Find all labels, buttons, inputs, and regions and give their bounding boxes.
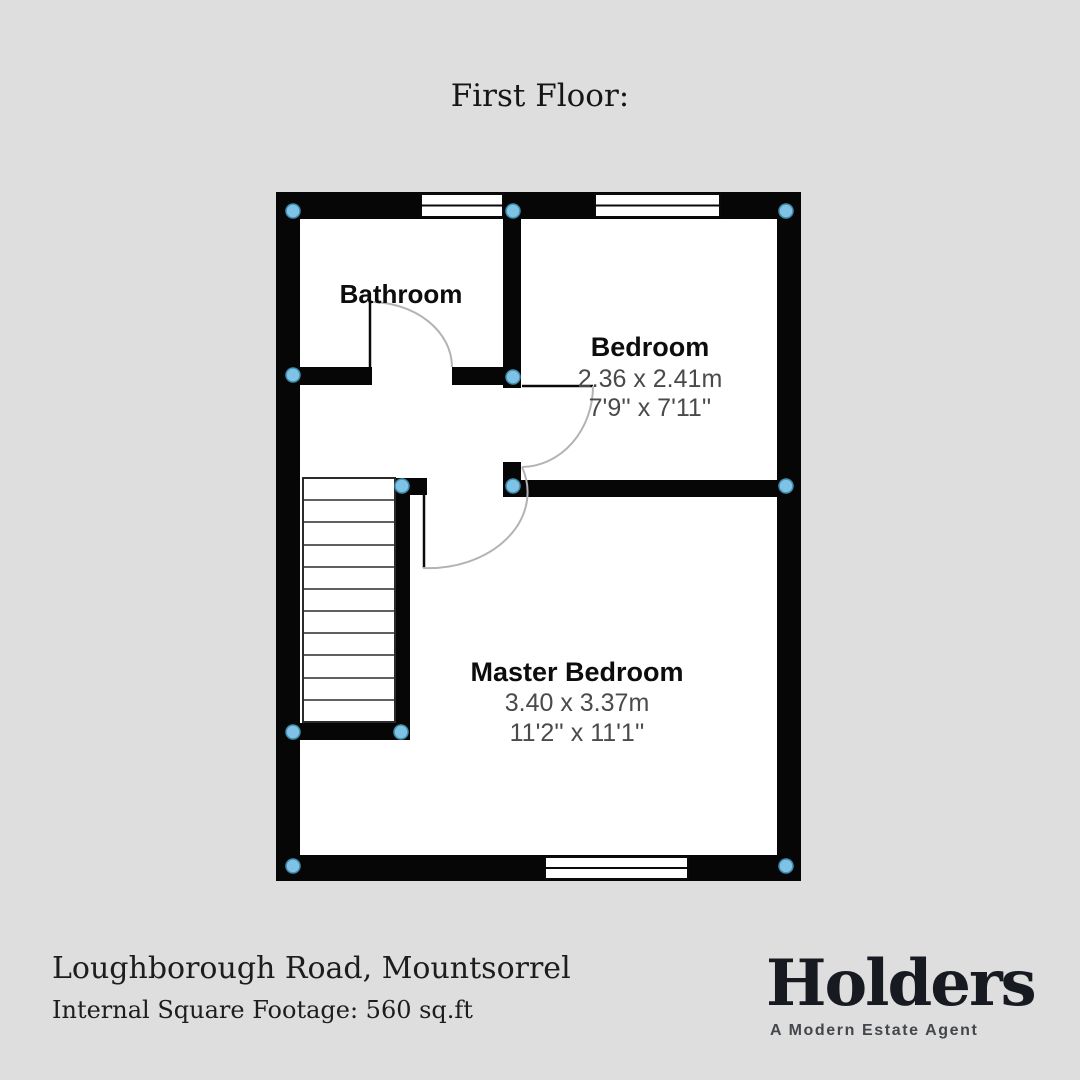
bedroom-dimensions-imperial: 7'9'' x 7'11'' <box>589 394 712 422</box>
corner-marker <box>286 368 300 382</box>
corner-marker <box>779 859 793 873</box>
logo-tagline: A Modern Estate Agent <box>770 1022 978 1040</box>
corner-marker <box>506 370 520 384</box>
corner-marker <box>394 725 408 739</box>
corner-marker <box>506 204 520 218</box>
property-address: Loughborough Road, Mountsorrel <box>52 951 571 986</box>
corner-marker <box>506 479 520 493</box>
bedroom-label: Bedroom <box>591 332 710 362</box>
master-bedroom-dimensions-metric: 3.40 x 3.37m <box>505 689 650 717</box>
corner-marker <box>286 204 300 218</box>
staircase <box>303 478 395 722</box>
corner-marker <box>286 725 300 739</box>
floorplan-diagram: Bathroom Bedroom 2.36 x 2.41m 7'9'' x 7'… <box>0 0 1080 1080</box>
bedroom-dimensions-metric: 2.36 x 2.41m <box>578 365 723 393</box>
master-bedroom-label: Master Bedroom <box>470 657 683 687</box>
corner-marker <box>779 479 793 493</box>
window-bottom <box>545 857 688 879</box>
corner-marker <box>395 479 409 493</box>
bathroom-label: Bathroom <box>340 279 463 309</box>
master-bedroom-dimensions-imperial: 11'2'' x 11'1'' <box>510 719 645 747</box>
corner-marker <box>779 204 793 218</box>
corner-marker <box>286 859 300 873</box>
floorplan-page: First Floor: <box>0 0 1080 1080</box>
square-footage: Internal Square Footage: 560 sq.ft <box>52 996 473 1024</box>
window-top-right <box>595 194 720 217</box>
logo-wordmark: Holders <box>766 952 1035 1016</box>
window-top-left <box>421 194 503 217</box>
